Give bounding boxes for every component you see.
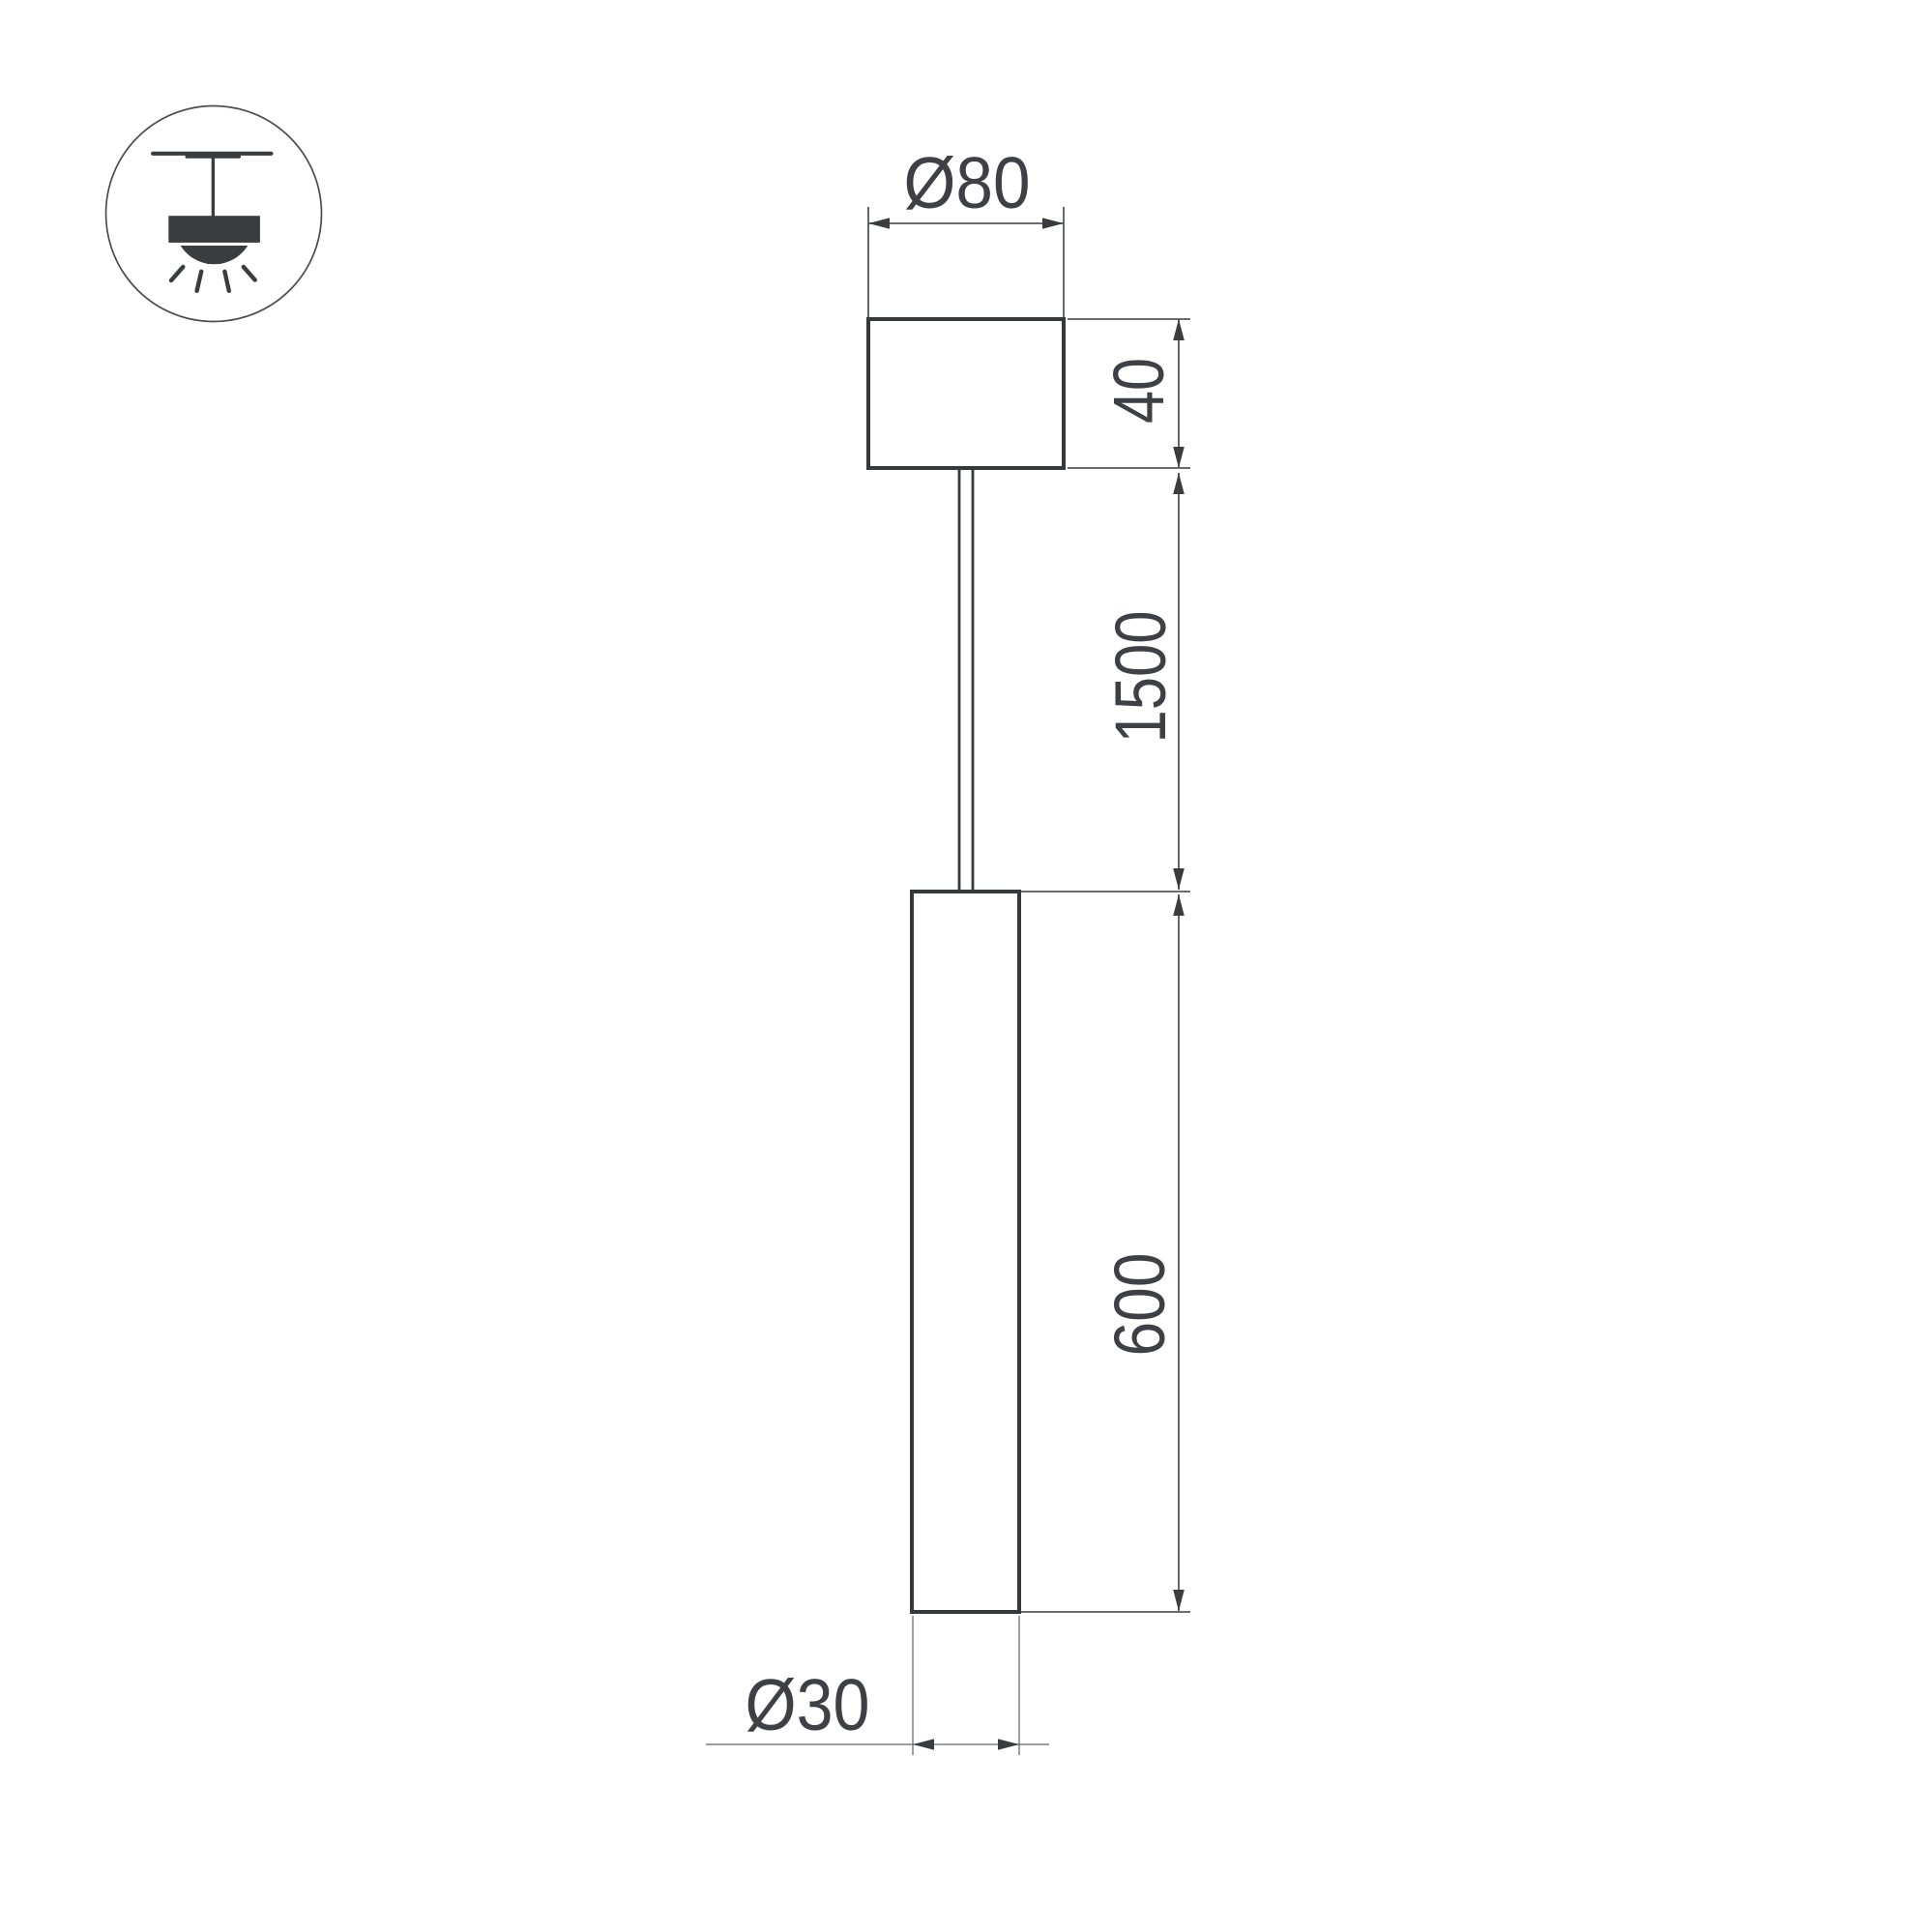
- svg-text:Ø30: Ø30: [746, 1664, 870, 1745]
- svg-text:Ø80: Ø80: [904, 142, 1031, 223]
- svg-text:1500: 1500: [1100, 611, 1181, 744]
- svg-text:600: 600: [1099, 1253, 1180, 1357]
- svg-text:40: 40: [1098, 358, 1179, 424]
